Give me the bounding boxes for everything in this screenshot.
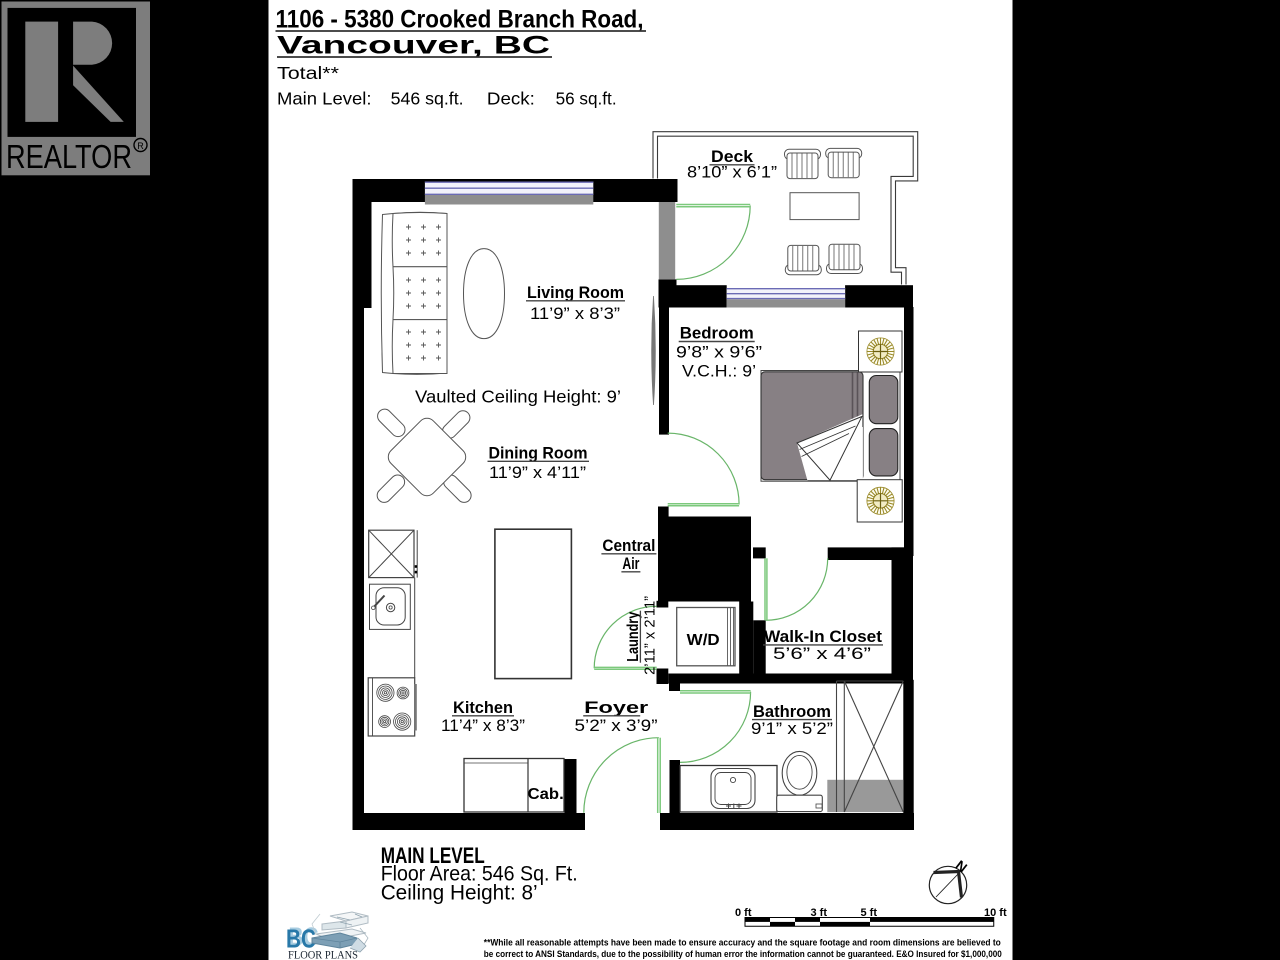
svg-text:5’6” x 4’6”: 5’6” x 4’6” bbox=[773, 645, 871, 663]
svg-text:Vancouver, BC: Vancouver, BC bbox=[277, 31, 550, 59]
svg-text:5 ft: 5 ft bbox=[861, 907, 878, 919]
svg-text:Total**: Total** bbox=[277, 63, 339, 83]
svg-text:Kitchen: Kitchen bbox=[453, 698, 513, 717]
svg-text:Laundry: Laundry bbox=[625, 611, 642, 661]
svg-text:Dining Room: Dining Room bbox=[489, 444, 588, 463]
svg-text:1106 - 5380 Crooked Branch Roa: 1106 - 5380 Crooked Branch Road, bbox=[276, 6, 644, 34]
svg-text:Ceiling Height: 8’: Ceiling Height: 8’ bbox=[381, 881, 538, 904]
svg-text:W/D: W/D bbox=[687, 632, 720, 649]
svg-text:9’8” x 9’6”: 9’8” x 9’6” bbox=[676, 344, 762, 362]
svg-text:Cab.: Cab. bbox=[528, 786, 564, 803]
svg-text:Air: Air bbox=[622, 554, 639, 573]
svg-text:11’4” x 8’3”: 11’4” x 8’3” bbox=[441, 717, 525, 735]
svg-text:Foyer: Foyer bbox=[584, 698, 649, 717]
svg-text:Living Room: Living Room bbox=[527, 283, 624, 302]
svg-text:FLOOR PLANS: FLOOR PLANS bbox=[288, 948, 358, 960]
svg-text:**While all reasonable attempt: **While all reasonable attempts have bee… bbox=[484, 938, 1001, 948]
svg-text:5’2” x 3’9”: 5’2” x 3’9” bbox=[575, 717, 658, 735]
svg-text:8’10” x 6’1”: 8’10” x 6’1” bbox=[687, 163, 777, 181]
svg-text:R: R bbox=[137, 141, 144, 151]
svg-text:9’1” x 5’2”: 9’1” x 5’2” bbox=[751, 720, 833, 738]
svg-text:Vaulted Ceiling Height: 9’: Vaulted Ceiling Height: 9’ bbox=[415, 387, 621, 407]
svg-text:V.C.H.: 9’: V.C.H.: 9’ bbox=[682, 363, 756, 381]
svg-text:3 ft: 3 ft bbox=[811, 907, 828, 919]
svg-text:0 ft: 0 ft bbox=[735, 907, 752, 919]
svg-text:2’11” x 2’11”: 2’11” x 2’11” bbox=[642, 596, 659, 675]
svg-text:546 sq.ft.: 546 sq.ft. bbox=[391, 89, 464, 109]
svg-text:Central: Central bbox=[602, 536, 655, 555]
svg-text:56 sq.ft.: 56 sq.ft. bbox=[556, 89, 617, 109]
svg-text:Main Level:: Main Level: bbox=[277, 89, 372, 109]
svg-text:Deck:: Deck: bbox=[487, 89, 535, 109]
svg-text:Walk-In Closet: Walk-In Closet bbox=[764, 627, 882, 646]
svg-text:10 ft: 10 ft bbox=[984, 907, 1007, 919]
svg-text:be correct to ANSI Standards,: be correct to ANSI Standards, due to the… bbox=[484, 949, 1002, 959]
svg-text:REALTOR: REALTOR bbox=[6, 138, 132, 175]
svg-text:11’9” x 4’11”: 11’9” x 4’11” bbox=[489, 464, 586, 482]
svg-text:11’9” x 8’3”: 11’9” x 8’3” bbox=[530, 305, 620, 323]
svg-text:Bedroom: Bedroom bbox=[680, 324, 754, 343]
svg-text:Bathroom: Bathroom bbox=[753, 702, 831, 721]
